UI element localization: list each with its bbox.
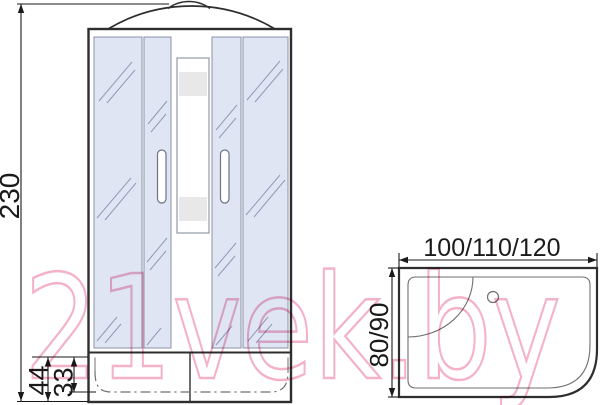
door-handle-right [221, 150, 230, 203]
column-band-top [179, 72, 207, 96]
height-dimension-label: 230 [0, 169, 24, 223]
shower-cabin-technical-drawing: 230 44 33 100/110/120 80/90 21vek.by [0, 0, 600, 405]
site-watermark: 21vek.by [24, 256, 561, 405]
roof-dome-arc [108, 6, 275, 29]
door-handle-left [158, 150, 167, 203]
column-band-bottom [179, 197, 207, 221]
